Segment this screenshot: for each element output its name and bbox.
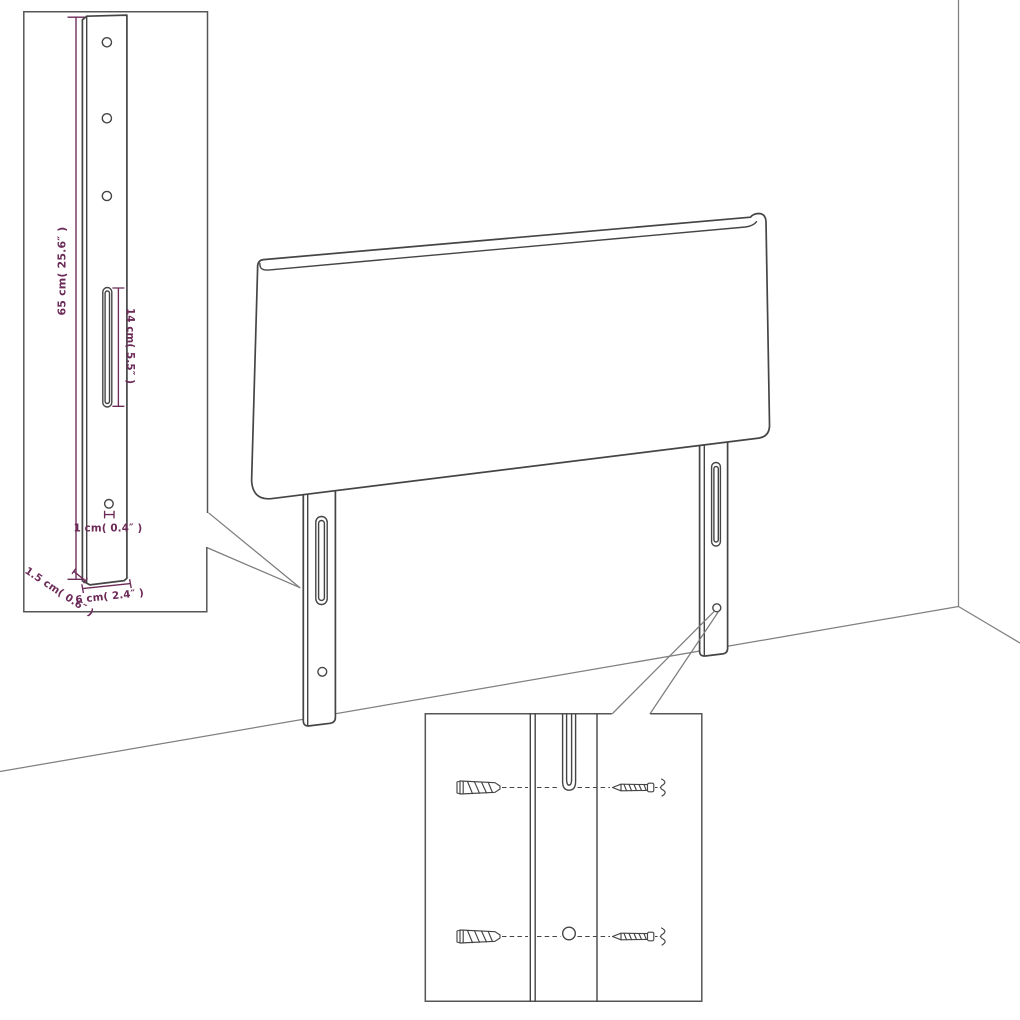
left-callout-lower-line bbox=[207, 548, 300, 588]
left-detail-inset: 65 cm( 25.6″ ) 14 cm( 5.5″ ) 1 cm( 0.4″ … bbox=[22, 12, 207, 619]
wall-plug-icon-bottom bbox=[457, 930, 500, 943]
post-hole-lower bbox=[102, 191, 111, 200]
dimension-diagram: 65 cm( 25.6″ ) 14 cm( 5.5″ ) 1 cm( 0.4″ … bbox=[0, 0, 1020, 1020]
panel-outline bbox=[252, 214, 770, 499]
post-hole-top bbox=[102, 38, 111, 47]
left-callout-upper-line bbox=[209, 513, 300, 587]
left-leg bbox=[303, 485, 335, 726]
left-leg-hole bbox=[318, 667, 327, 676]
floor-line-right bbox=[959, 607, 1020, 644]
headboard-panel bbox=[252, 214, 770, 499]
floor-line-left bbox=[0, 607, 959, 772]
right-callout-right-line bbox=[650, 612, 718, 714]
screw-icon-bottom bbox=[613, 932, 654, 941]
hole-closeup bbox=[563, 927, 576, 940]
fastener-row-bottom bbox=[457, 928, 665, 945]
leg-closeup-drawing bbox=[530, 714, 597, 1002]
spring-squiggle-icon-top bbox=[661, 779, 665, 796]
post-bottom-hole bbox=[105, 500, 114, 509]
right-leg-slot bbox=[712, 463, 721, 547]
post-hole-middle bbox=[102, 114, 111, 123]
dim-height-label: 65 cm( 25.6″ ) bbox=[56, 227, 69, 316]
spring-squiggle-icon-bottom bbox=[661, 928, 665, 945]
dim-hole-label: 1 cm( 0.4″ ) bbox=[74, 523, 143, 535]
bottom-detail-box-border bbox=[425, 714, 702, 1002]
slot-closeup-outer bbox=[563, 714, 576, 790]
bottom-detail-inset bbox=[425, 714, 702, 1002]
right-callout-left-line bbox=[613, 611, 715, 713]
leg-detail-drawing bbox=[82, 15, 127, 585]
left-leg-slot bbox=[316, 517, 327, 605]
right-leg-hole bbox=[713, 604, 721, 612]
post-slot bbox=[103, 288, 112, 408]
slot-closeup-inner bbox=[567, 714, 572, 785]
fastener-row-top bbox=[457, 779, 665, 796]
left-detail-callout-lines bbox=[207, 513, 300, 587]
dim-slot-label: 14 cm( 5.5″ ) bbox=[124, 308, 136, 384]
diagram-canvas: 65 cm( 25.6″ ) 14 cm( 5.5″ ) 1 cm( 0.4″ … bbox=[0, 0, 1020, 1020]
screw-icon-top bbox=[613, 783, 654, 792]
wall-plug-icon-top bbox=[457, 781, 500, 794]
